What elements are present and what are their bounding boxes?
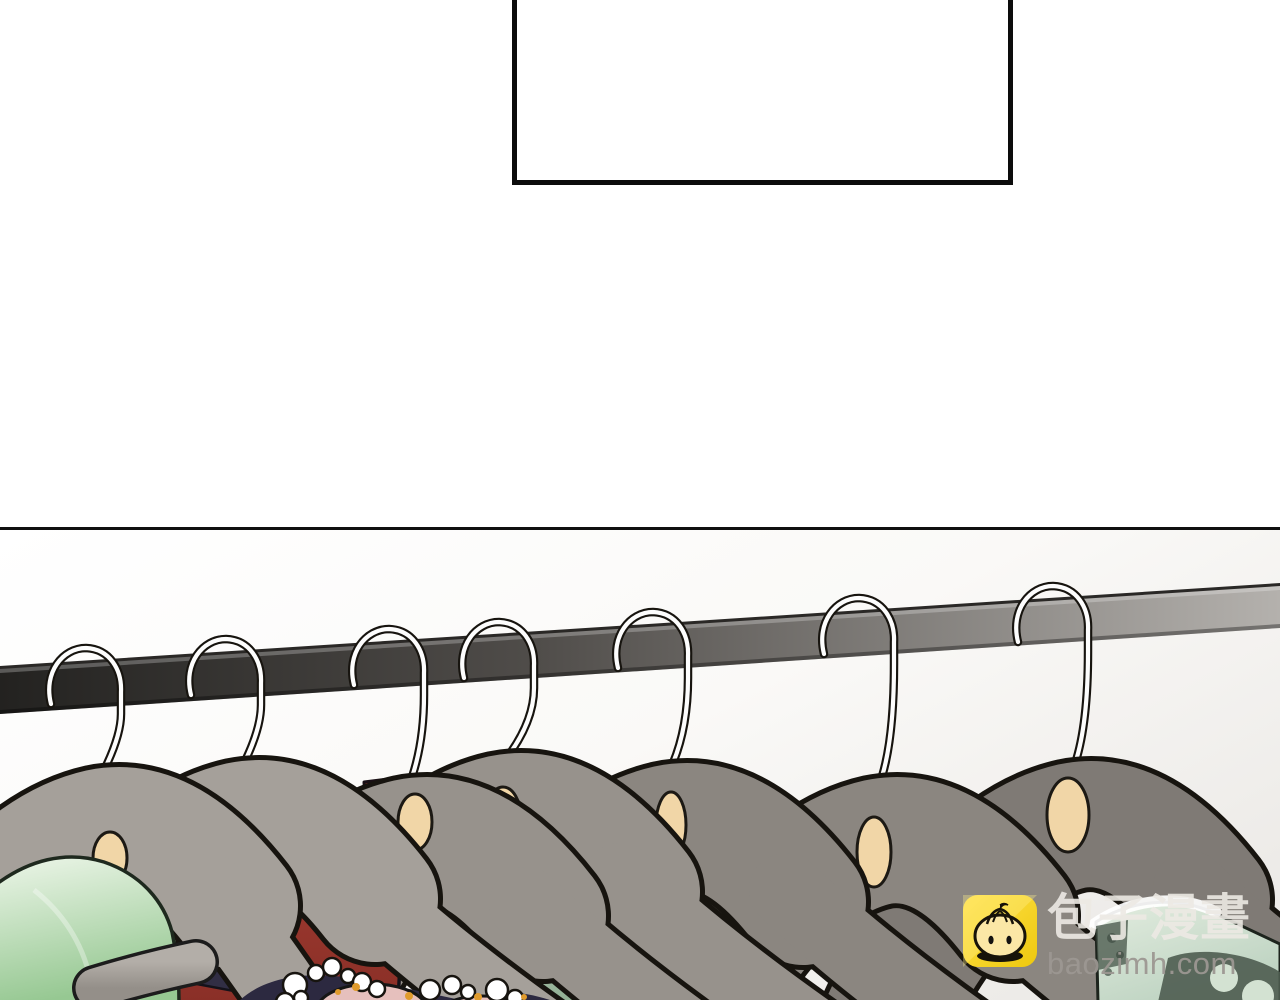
bubble bbox=[420, 980, 440, 1000]
bubble bbox=[276, 993, 294, 1000]
watermark: 包子漫畫 baozimh.com bbox=[963, 893, 1263, 993]
bubble bbox=[294, 991, 308, 1000]
watermark-texts: 包子漫畫 baozimh.com bbox=[1047, 893, 1263, 979]
bubble bbox=[443, 976, 461, 994]
bubble bbox=[369, 981, 385, 997]
bubble bbox=[308, 965, 324, 981]
hair-bead bbox=[352, 983, 360, 991]
hanger-7-hole bbox=[1047, 778, 1089, 852]
comic-page: { "page": { "type": "comic-panel", "back… bbox=[0, 0, 1280, 1000]
hair-bead bbox=[405, 992, 413, 1000]
bubble bbox=[461, 985, 475, 999]
hair-bead bbox=[521, 994, 527, 1000]
bubble bbox=[507, 990, 523, 1000]
hair-bead bbox=[335, 989, 341, 995]
baozi-app-icon bbox=[963, 895, 1037, 967]
fabric-roll bbox=[95, 962, 196, 988]
caption-box bbox=[512, 0, 1013, 185]
watermark-domain-text: baozimh.com bbox=[1047, 948, 1263, 979]
bubble bbox=[486, 979, 508, 1000]
bun-face bbox=[975, 915, 1025, 957]
watermark-cjk-text: 包子漫畫 bbox=[1047, 893, 1263, 943]
bubble bbox=[323, 958, 341, 976]
